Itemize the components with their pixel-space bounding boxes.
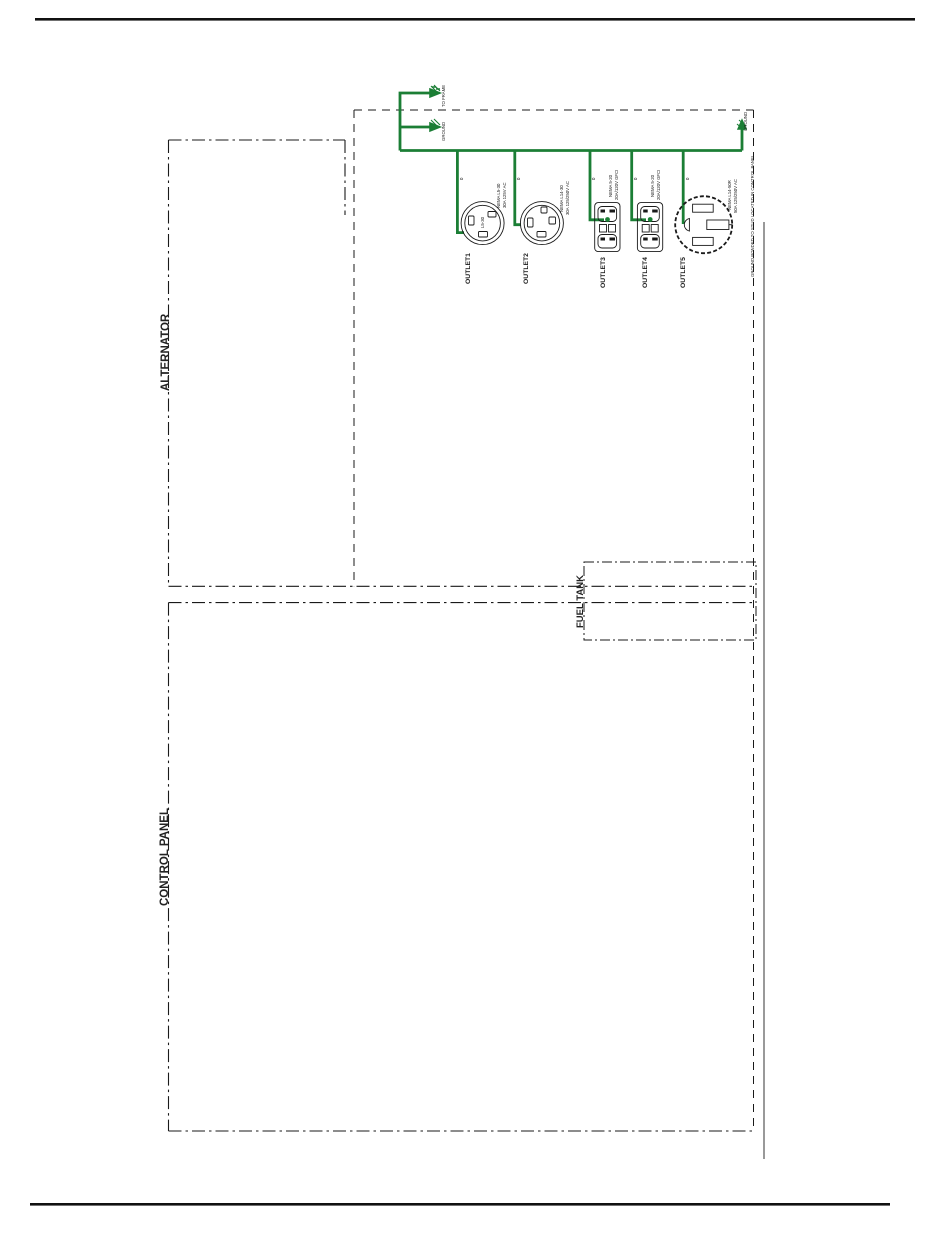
svg-text:L5-30: L5-30 bbox=[480, 216, 485, 228]
svg-text:OUTLET4: OUTLET4 bbox=[642, 257, 649, 288]
svg-text:50A 125/250V AC: 50A 125/250V AC bbox=[733, 179, 738, 213]
svg-text:30A 125/250V AC: 30A 125/250V AC bbox=[565, 181, 570, 215]
svg-text:20A/120V GFCI: 20A/120V GFCI bbox=[614, 170, 619, 200]
svg-text:ALTERNATOR: ALTERNATOR bbox=[160, 313, 172, 391]
svg-text:GROUND: GROUND bbox=[441, 122, 446, 141]
svg-text:FUEL TANK: FUEL TANK bbox=[575, 575, 586, 628]
svg-text:OUTLET2: OUTLET2 bbox=[523, 253, 530, 284]
svg-text:CONTROL PANEL: CONTROL PANEL bbox=[159, 808, 171, 906]
svg-text:NEMA L5-30: NEMA L5-30 bbox=[496, 183, 501, 208]
svg-text:NEMA 5-20: NEMA 5-20 bbox=[608, 174, 613, 197]
svg-text:NEMA 5-20: NEMA 5-20 bbox=[650, 174, 655, 197]
svg-text:NEMA L14-30: NEMA L14-30 bbox=[559, 185, 564, 212]
svg-text:GROUND BONDED TO STUD LOCATED: GROUND BONDED TO STUD LOCATED IN CONTROL… bbox=[750, 154, 755, 277]
svg-text:NEMA L14-50R: NEMA L14-50R bbox=[727, 180, 732, 210]
svg-text:OUTLET5: OUTLET5 bbox=[680, 257, 687, 288]
svg-text:30A 125V AC: 30A 125V AC bbox=[502, 182, 507, 208]
svg-text:OUTLET1: OUTLET1 bbox=[465, 253, 472, 284]
svg-text:OUTLET3: OUTLET3 bbox=[600, 257, 607, 288]
svg-text:TO FRAME: TO FRAME bbox=[441, 85, 446, 107]
svg-text:GROUND: GROUND bbox=[743, 112, 748, 131]
svg-text:20A/120V GFCI: 20A/120V GFCI bbox=[656, 170, 661, 200]
